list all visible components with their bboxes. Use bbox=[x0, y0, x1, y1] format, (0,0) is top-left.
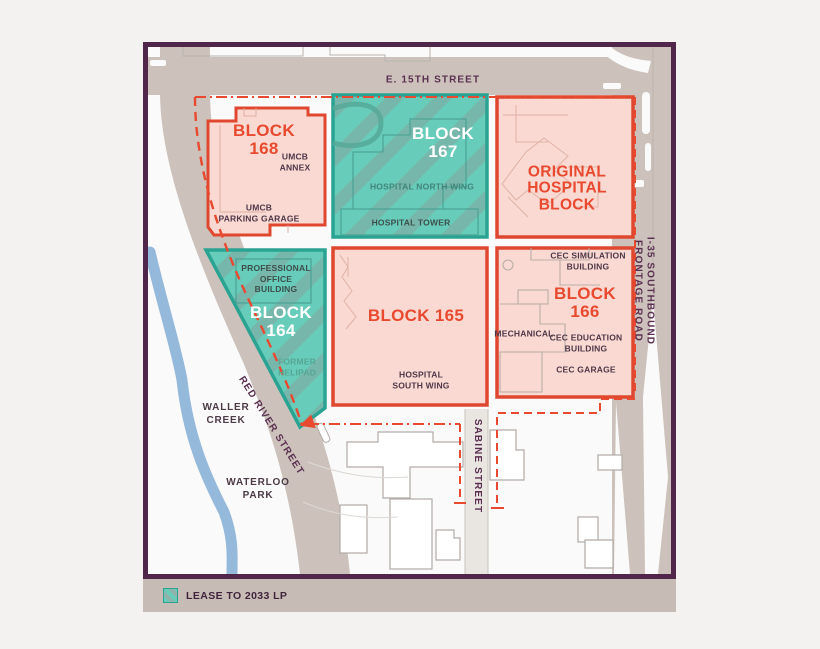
road-island bbox=[642, 92, 650, 134]
map-frame bbox=[143, 42, 676, 579]
block-166-shape bbox=[497, 248, 633, 397]
road-island bbox=[645, 143, 651, 171]
crosswalk-mark bbox=[150, 60, 166, 66]
block-168-shape bbox=[208, 108, 325, 235]
road-mark bbox=[603, 83, 621, 89]
original-hospital-shape bbox=[497, 97, 633, 237]
block-165-shape bbox=[333, 248, 487, 405]
legend-label: LEASE TO 2033 LP bbox=[186, 590, 287, 602]
e15th-street-shape bbox=[148, 57, 671, 95]
sabine-street-shape bbox=[465, 409, 488, 574]
map-graphics bbox=[148, 47, 671, 574]
lease-swatch-icon bbox=[163, 588, 178, 603]
block-167-shape bbox=[333, 95, 487, 237]
legend-strip: LEASE TO 2033 LP bbox=[143, 579, 676, 612]
site-map-canvas: E. 15TH STREET I-35 SOUTHBOUND FRONTAGE … bbox=[0, 0, 820, 649]
